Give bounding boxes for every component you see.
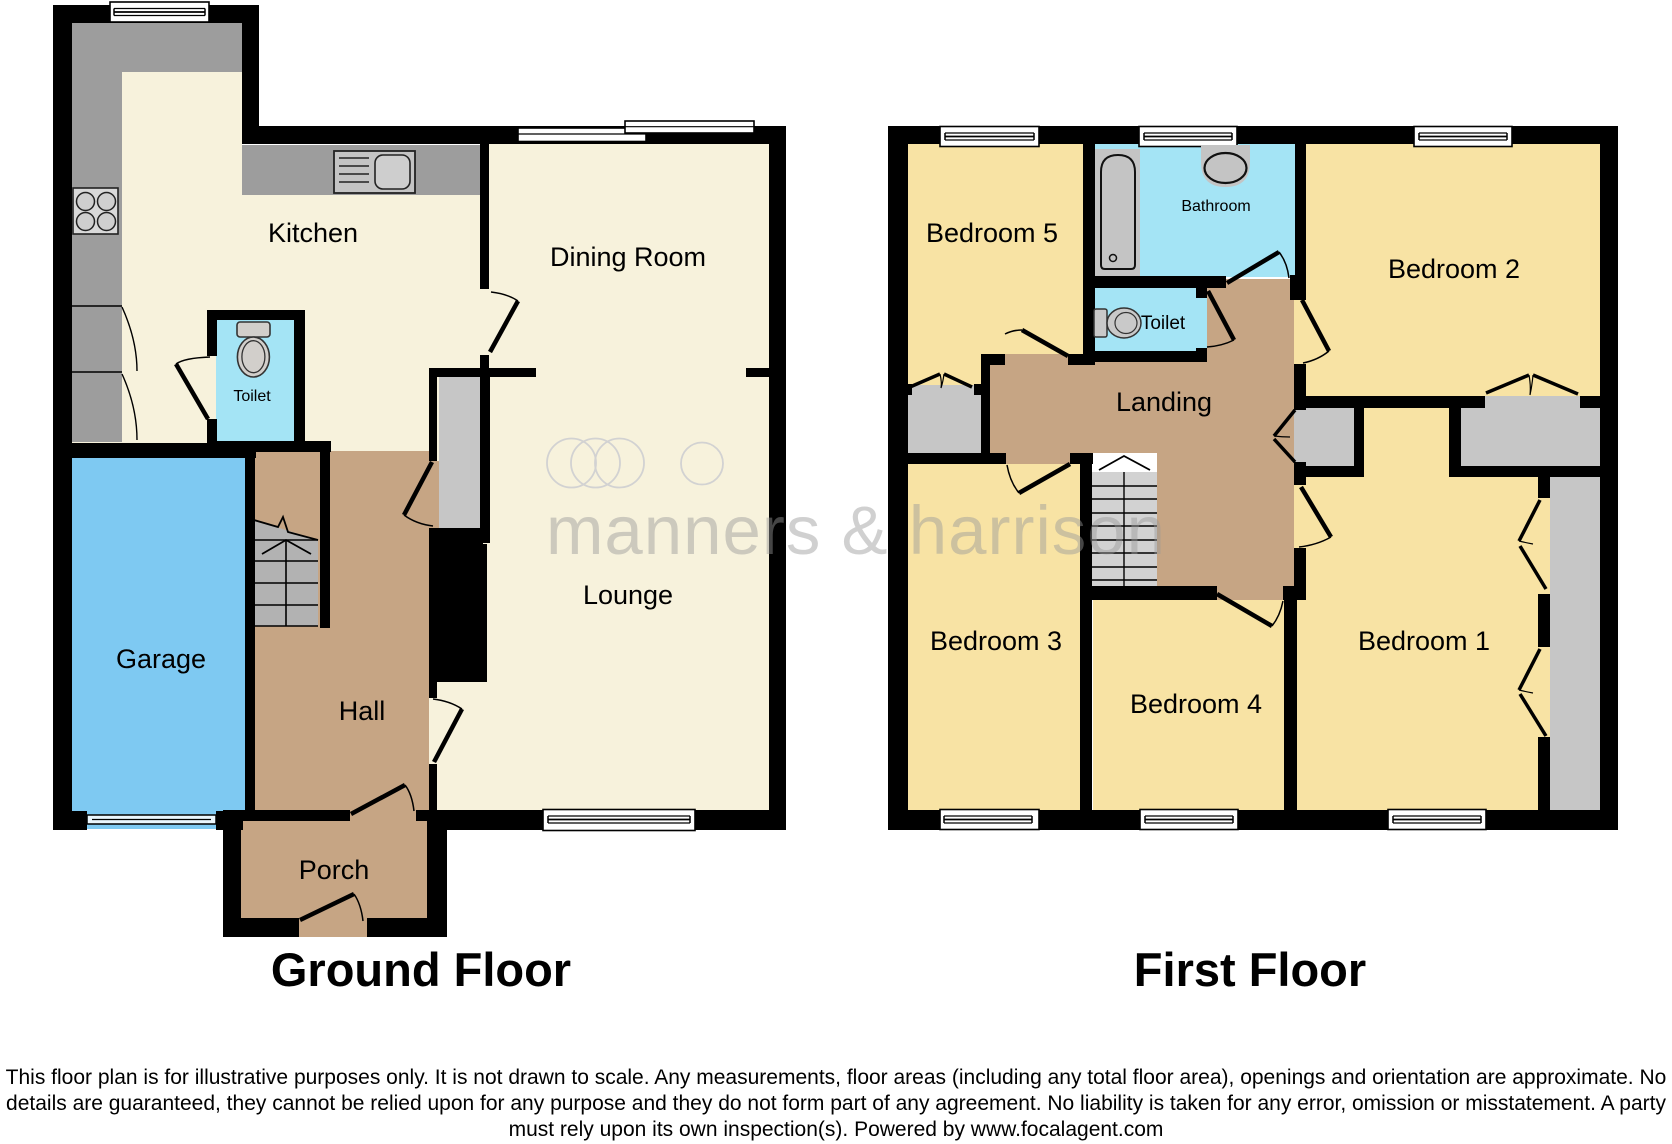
svg-text:Bedroom 5: Bedroom 5 <box>926 218 1058 248</box>
svg-text:Ground Floor: Ground Floor <box>271 943 571 996</box>
svg-text:Bedroom 1: Bedroom 1 <box>1358 626 1490 656</box>
svg-text:details are guaranteed, they c: details are guaranteed, they cannot be r… <box>6 1092 1666 1115</box>
svg-text:Porch: Porch <box>299 855 370 885</box>
svg-text:Bedroom 4: Bedroom 4 <box>1130 689 1262 719</box>
svg-text:must rely upon its own inspect: must rely upon its own inspection(s). Po… <box>509 1118 1164 1141</box>
svg-text:Lounge: Lounge <box>583 580 673 610</box>
svg-text:Toilet: Toilet <box>233 388 271 405</box>
svg-text:Kitchen: Kitchen <box>268 218 358 248</box>
svg-text:Garage: Garage <box>116 644 206 674</box>
svg-text:manners & harrison: manners & harrison <box>546 492 1166 569</box>
svg-text:First Floor: First Floor <box>1134 943 1366 996</box>
svg-text:Bedroom 3: Bedroom 3 <box>930 626 1062 656</box>
svg-text:Bedroom 2: Bedroom 2 <box>1388 254 1520 284</box>
svg-text:This floor plan is for illustr: This floor plan is for illustrative purp… <box>6 1066 1667 1089</box>
svg-text:Dining Room: Dining Room <box>550 242 706 272</box>
svg-text:Bathroom: Bathroom <box>1181 198 1250 215</box>
svg-text:Hall: Hall <box>339 696 386 726</box>
svg-text:Toilet: Toilet <box>1141 313 1186 334</box>
svg-text:Landing: Landing <box>1116 387 1212 417</box>
